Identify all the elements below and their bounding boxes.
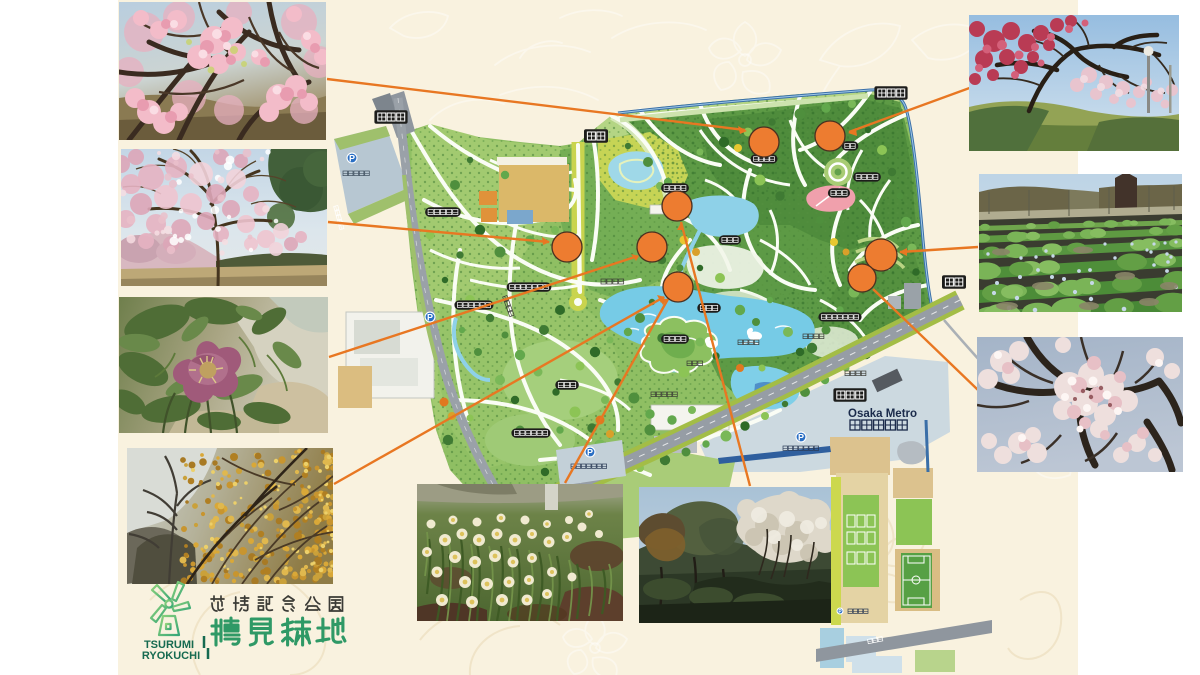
svg-text:P: P [349,153,355,163]
svg-text:P: P [587,447,593,457]
svg-text:Osaka Metro: Osaka Metro [848,408,917,420]
svg-text:P: P [798,432,804,442]
svg-text:P: P [427,312,433,322]
svg-text:RYOKUCHI: RYOKUCHI [142,650,200,662]
